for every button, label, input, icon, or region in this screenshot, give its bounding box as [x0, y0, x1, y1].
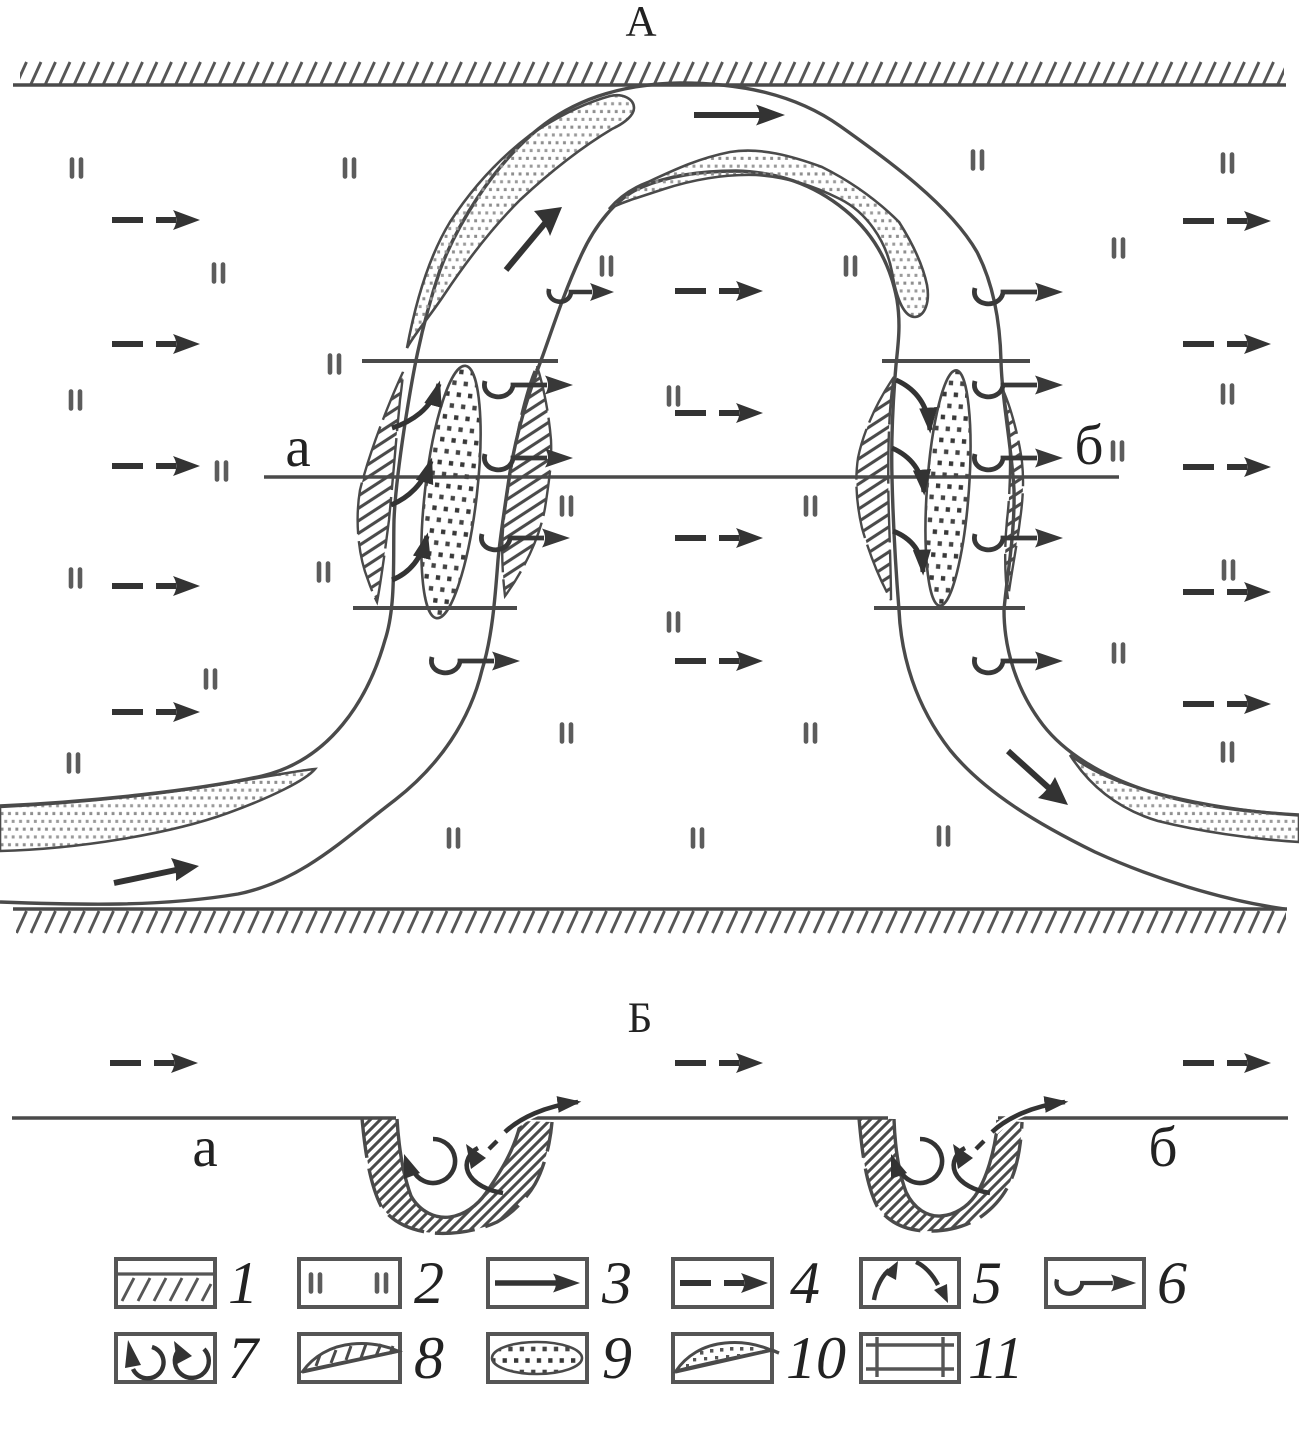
svg-text:А: А [625, 0, 656, 46]
svg-text:б: б [1148, 1116, 1177, 1179]
svg-text:11: 11 [968, 1325, 1024, 1391]
svg-text:а: а [285, 416, 310, 479]
svg-text:4: 4 [790, 1250, 820, 1316]
svg-text:3: 3 [601, 1250, 632, 1316]
svg-text:б: б [1074, 414, 1103, 477]
svg-text:5: 5 [972, 1250, 1002, 1316]
svg-text:1: 1 [228, 1250, 258, 1316]
svg-text:10: 10 [786, 1325, 846, 1391]
svg-text:9: 9 [602, 1325, 632, 1391]
svg-text:8: 8 [414, 1325, 444, 1391]
svg-text:6: 6 [1157, 1250, 1187, 1316]
svg-text:7: 7 [228, 1325, 261, 1391]
svg-text:2: 2 [414, 1250, 444, 1316]
svg-text:Б: Б [628, 995, 653, 1042]
svg-text:а: а [192, 1116, 217, 1179]
